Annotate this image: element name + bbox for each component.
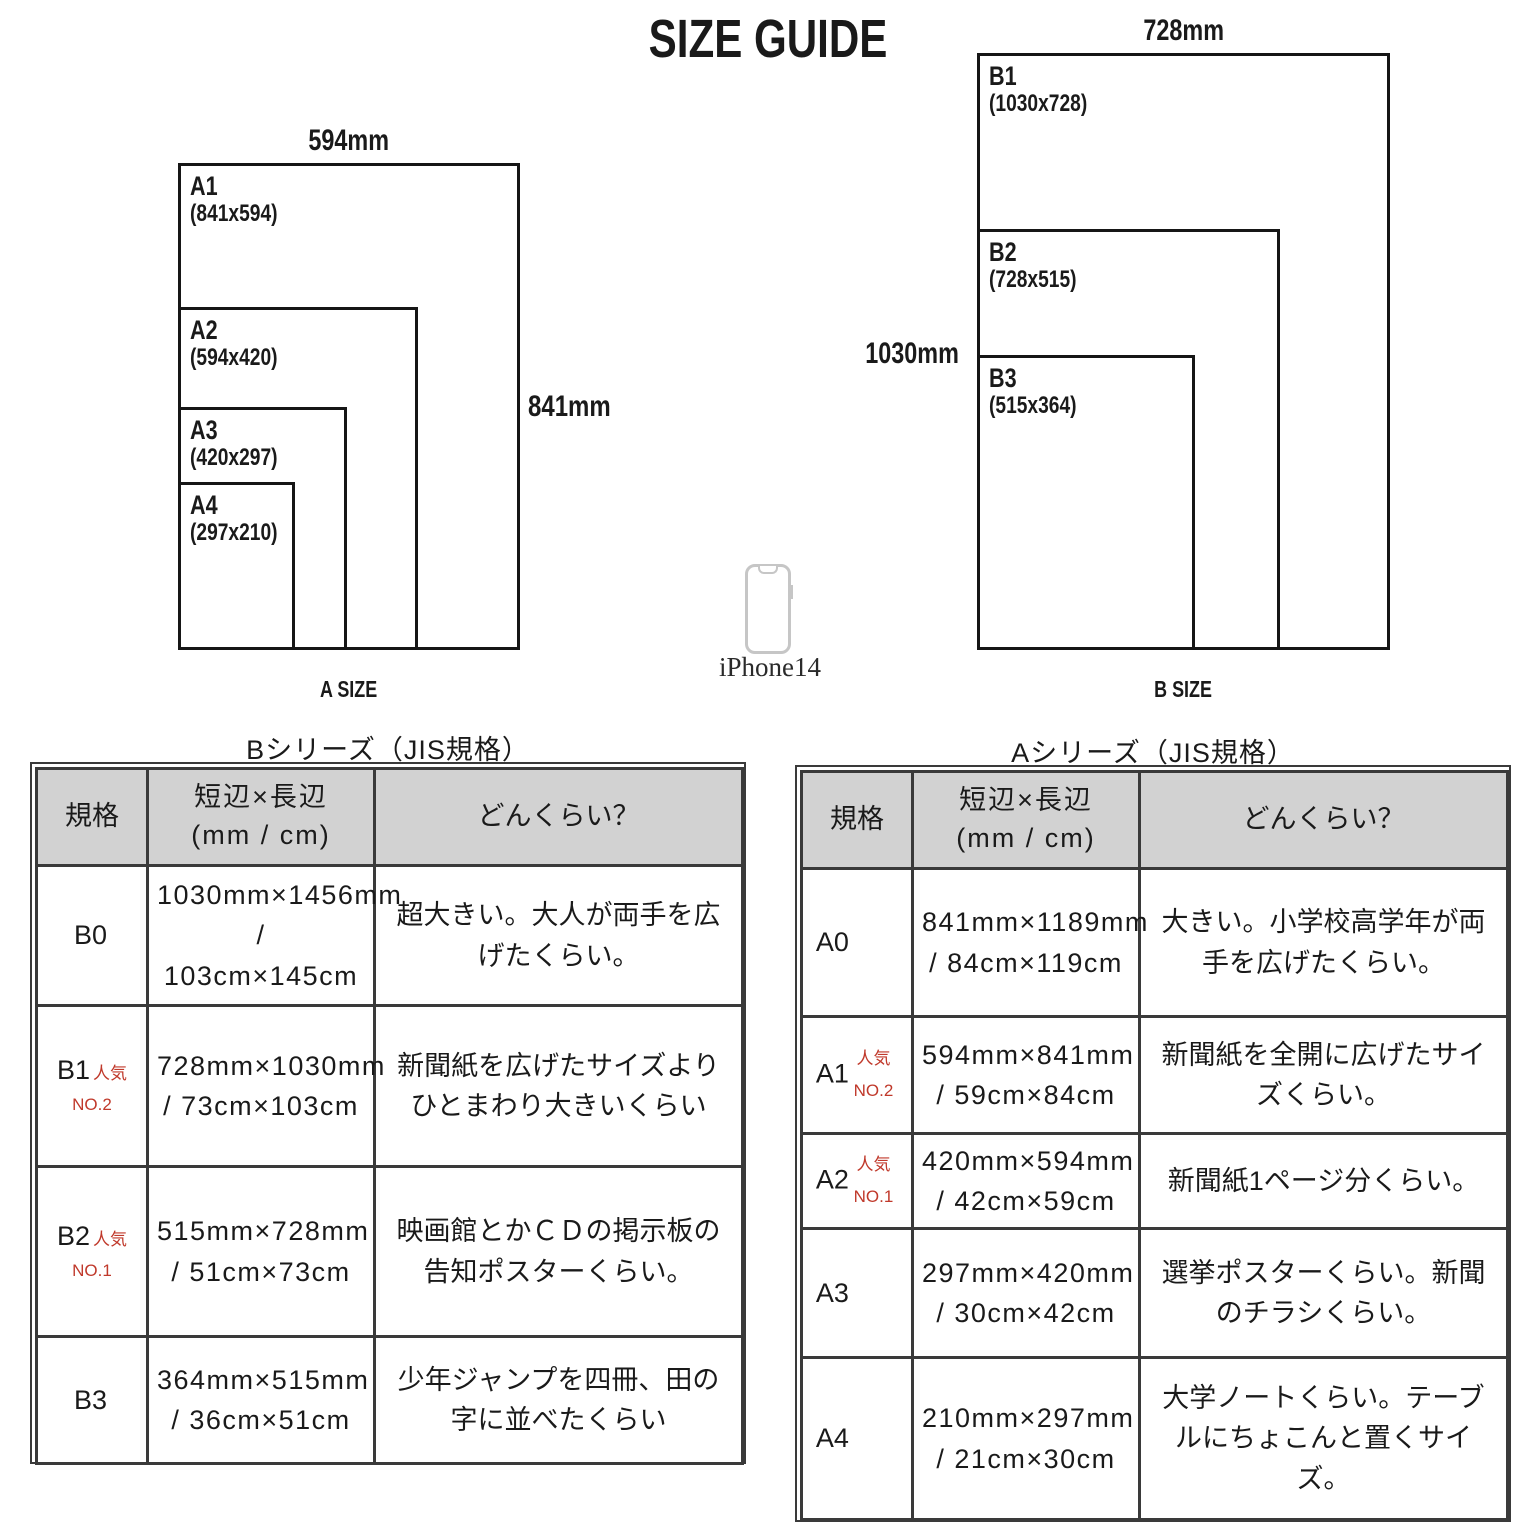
table-row-b3: B3 364mm×515mm / 36cm×51cm 少年ジャンプを四冊、田の字… [37, 1337, 743, 1464]
standard-cell: A0 [802, 869, 913, 1017]
size-cell: 420mm×594mm / 42cm×59cm [913, 1134, 1140, 1229]
a-side-dimension: 841mm [528, 390, 631, 424]
about-cell: 新聞紙1ページ分くらい。 [1140, 1134, 1508, 1229]
table-row-a1: A1人気NO.2 594mm×841mm / 59cm×84cm 新聞紙を全開に… [802, 1017, 1508, 1134]
page-title-text: SIZE GUIDE [649, 8, 888, 70]
iphone-icon [745, 564, 791, 654]
standard-label: B0 [74, 920, 107, 950]
standard-label: A4 [816, 1423, 849, 1453]
b-series-table: 規格 短辺×長辺 (mm / cm) どんくらい？ B0 1030mm×1456… [30, 762, 746, 1464]
table-row-a4: A4 210mm×297mm / 21cm×30cm 大学ノートくらい。テーブル… [802, 1358, 1508, 1520]
b-size-caption: B SIZE [977, 676, 1390, 703]
table-row-a3: A3 297mm×420mm / 30cm×42cm 選挙ポスターくらい。新聞の… [802, 1229, 1508, 1358]
table-row-a2: A2人気NO.1 420mm×594mm / 42cm×59cm 新聞紙1ページ… [802, 1134, 1508, 1229]
standard-cell: B2人気NO.1 [37, 1167, 148, 1337]
header-size-line1: 短辺×長辺 [922, 782, 1130, 820]
about-cell: 超大きい。大人が両手を広げたくらい。 [375, 866, 743, 1006]
header-about: どんくらい？ [375, 769, 743, 866]
a-size-caption: A SIZE [178, 676, 520, 703]
sheet-b2-label: B2 (728x515) [980, 232, 1107, 299]
sheet-a1-label: A1 (841x594) [181, 166, 308, 233]
standard-label: A2 [816, 1164, 849, 1194]
header-size: 短辺×長辺 (mm / cm) [148, 769, 375, 866]
sheet-b3-label: B3 (515x364) [980, 358, 1107, 425]
header-about: どんくらい？ [1140, 772, 1508, 869]
standard-cell: A1人気NO.2 [802, 1017, 913, 1134]
header-size-line2: (mm / cm) [922, 820, 1130, 858]
about-cell: 新聞紙を広げたサイズよりひとまわり大きいくらい [375, 1006, 743, 1167]
header-standard: 規格 [37, 769, 148, 866]
a-series-table: 規格 短辺×長辺 (mm / cm) どんくらい？ A0 841mm×1189m… [795, 765, 1511, 1522]
b-side-dimension: 1030mm [838, 337, 972, 371]
table-row-b0: B0 1030mm×1456mm / 103cm×145cm 超大きい。大人が両… [37, 866, 743, 1006]
about-cell: 大学ノートくらい。テーブルにちょこんと置くサイズ。 [1140, 1358, 1508, 1520]
header-standard: 規格 [802, 772, 913, 869]
standard-label: A1 [816, 1058, 849, 1088]
sheet-a3-label: A3 (420x297) [181, 410, 308, 477]
iphone-side-button [790, 585, 793, 599]
about-cell: 映画館とかＣＤの掲示板の告知ポスターくらい。 [375, 1167, 743, 1337]
standard-label: B1 [57, 1055, 90, 1085]
b-header-row: 規格 短辺×長辺 (mm / cm) どんくらい？ [37, 769, 743, 866]
sheet-a4: A4 (297x210) [178, 482, 295, 650]
table-row-b1: B1人気NO.2 728mm×1030mm / 73cm×103cm 新聞紙を広… [37, 1006, 743, 1167]
size-cell: 728mm×1030mm / 73cm×103cm [148, 1006, 375, 1167]
table-row-a0: A0 841mm×1189mm / 84cm×119cm 大きい。小学校高学年が… [802, 869, 1508, 1017]
header-size-line1: 短辺×長辺 [157, 779, 365, 817]
standard-cell: A3 [802, 1229, 913, 1358]
standard-label: A0 [816, 927, 849, 957]
sheet-a2-label: A2 (594x420) [181, 310, 308, 377]
size-cell: 515mm×728mm / 51cm×73cm [148, 1167, 375, 1337]
standard-label: B2 [57, 1221, 90, 1251]
about-cell: 新聞紙を全開に広げたサイズくらい。 [1140, 1017, 1508, 1134]
size-cell: 364mm×515mm / 36cm×51cm [148, 1337, 375, 1464]
popularity-badge: 人気NO.2 [849, 1043, 898, 1108]
size-cell: 1030mm×1456mm / 103cm×145cm [148, 866, 375, 1006]
header-size: 短辺×長辺 (mm / cm) [913, 772, 1140, 869]
size-cell: 594mm×841mm / 59cm×84cm [913, 1017, 1140, 1134]
a-header-row: 規格 短辺×長辺 (mm / cm) どんくらい？ [802, 772, 1508, 869]
standard-label: B3 [74, 1385, 107, 1415]
size-cell: 297mm×420mm / 30cm×42cm [913, 1229, 1140, 1358]
b-top-dimension: 728mm [977, 14, 1390, 48]
header-size-line2: (mm / cm) [157, 817, 365, 855]
standard-cell: A4 [802, 1358, 913, 1520]
table-row-b2: B2人気NO.1 515mm×728mm / 51cm×73cm 映画館とかＣＤ… [37, 1167, 743, 1337]
iphone-notch [758, 566, 778, 574]
sheet-b3: B3 (515x364) [977, 355, 1195, 650]
standard-label: A3 [816, 1278, 849, 1308]
a-top-dimension: 594mm [178, 124, 520, 158]
standard-cell: B3 [37, 1337, 148, 1464]
standard-cell: A2人気NO.1 [802, 1134, 913, 1229]
iphone-label: iPhone14 [690, 652, 850, 683]
standard-cell: B1人気NO.2 [37, 1006, 148, 1167]
size-cell: 210mm×297mm / 21cm×30cm [913, 1358, 1140, 1520]
about-cell: 大きい。小学校高学年が両手を広げたくらい。 [1140, 869, 1508, 1017]
sheet-b1-label: B1 (1030x728) [980, 56, 1121, 123]
about-cell: 選挙ポスターくらい。新聞のチラシくらい。 [1140, 1229, 1508, 1358]
popularity-badge: 人気NO.1 [849, 1149, 898, 1214]
size-cell: 841mm×1189mm / 84cm×119cm [913, 869, 1140, 1017]
about-cell: 少年ジャンプを四冊、田の字に並べたくらい [375, 1337, 743, 1464]
sheet-a4-label: A4 (297x210) [181, 485, 308, 552]
standard-cell: B0 [37, 866, 148, 1006]
